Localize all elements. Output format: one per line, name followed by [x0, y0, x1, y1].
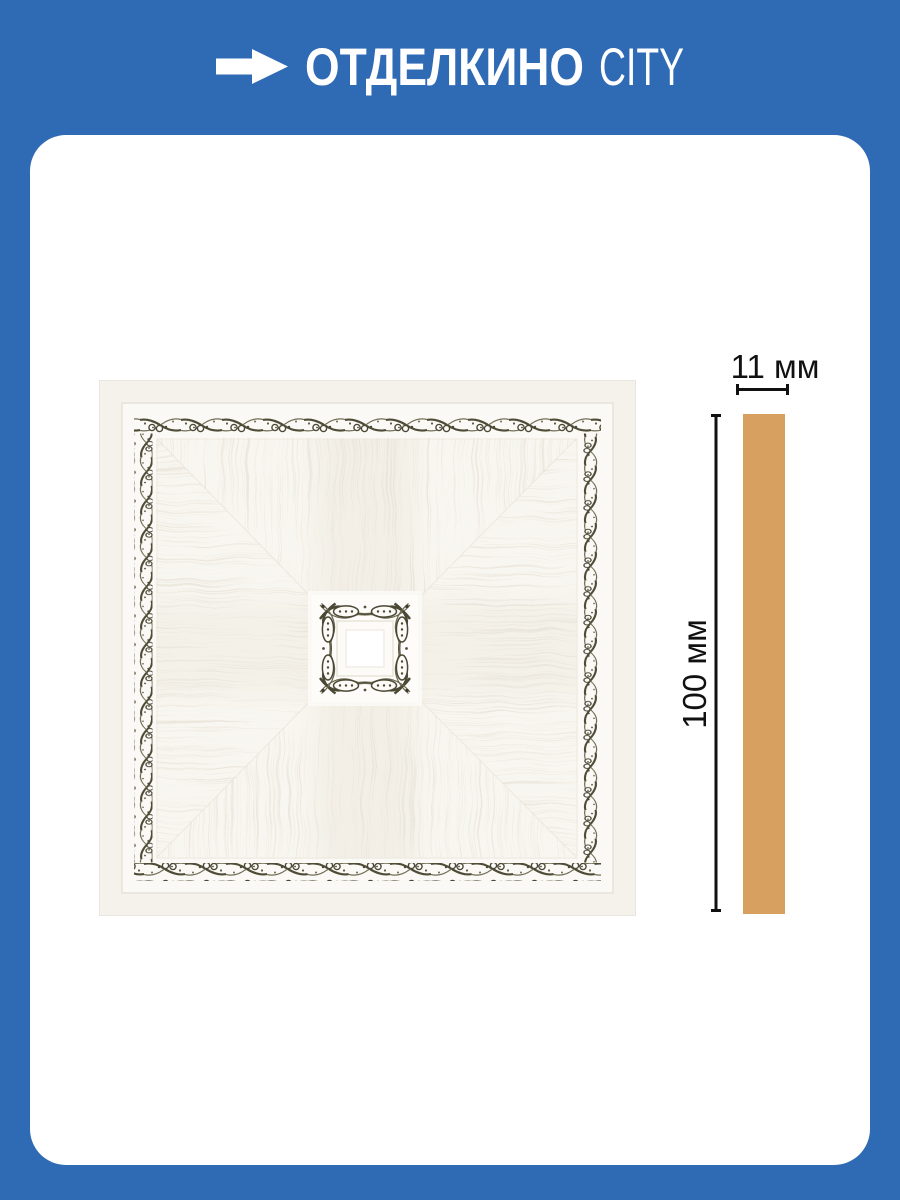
svg-text:100 мм: 100 мм: [676, 619, 713, 729]
svg-text:ОТДЕЛКИНО: ОТДЕЛКИНО: [305, 38, 584, 97]
svg-text:CITY: CITY: [599, 38, 684, 97]
